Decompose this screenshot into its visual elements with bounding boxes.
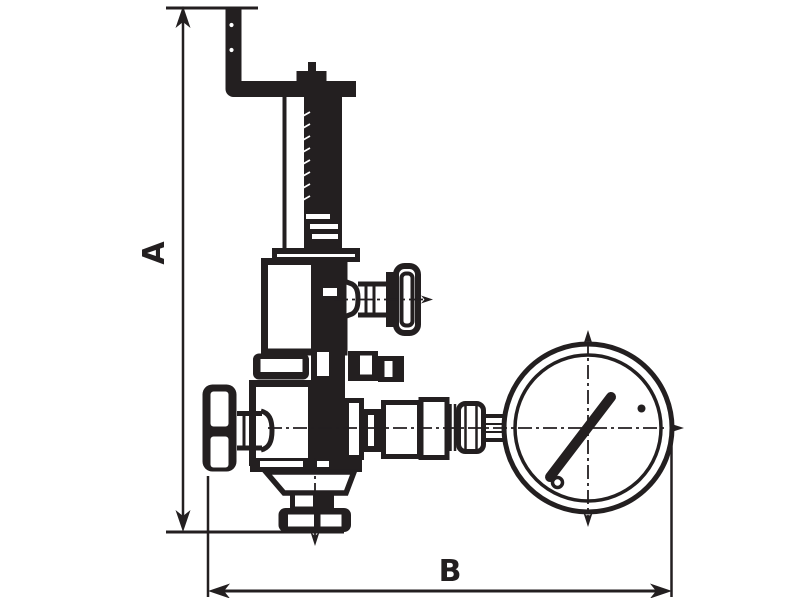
- chamber-notch: [323, 288, 337, 296]
- locknut-slit: [310, 224, 338, 229]
- flange-seam: [260, 461, 303, 467]
- spring-housing: [272, 97, 360, 262]
- lug-slit: [360, 356, 372, 375]
- dim-a-label: A: [137, 241, 172, 265]
- lever-highlight-dot: [229, 23, 233, 27]
- fitting-flange: [347, 401, 362, 458]
- adjusting-lever: [229, 9, 356, 89]
- outlet-flange-window: [321, 515, 342, 527]
- chamber-section-cut: [311, 259, 344, 352]
- knob-window: [211, 437, 229, 468]
- valve-technical-drawing: A B: [0, 0, 800, 598]
- flange-seam: [277, 254, 355, 257]
- spring-chamber: [265, 259, 345, 352]
- locknut-slit: [306, 214, 330, 219]
- flange-window: [261, 359, 303, 372]
- nut-slit: [368, 415, 374, 446]
- needle-hub: [553, 478, 563, 488]
- lever-pipe: [234, 9, 357, 89]
- cap-block: [297, 71, 327, 84]
- locknut-slit: [312, 234, 338, 239]
- spindle-slit: [317, 352, 329, 376]
- dial-screw-dot: [638, 405, 646, 413]
- dim-b-label: B: [439, 554, 462, 589]
- fitting-block: [384, 403, 420, 457]
- drawing-canvas: A B: [0, 0, 800, 598]
- knob-window: [211, 392, 229, 427]
- flange-seam: [317, 461, 329, 467]
- bonnet-cap: [297, 62, 327, 84]
- lever-highlight-dot: [229, 48, 233, 52]
- outlet-taper: [266, 472, 354, 493]
- lug-slit-2: [385, 361, 393, 377]
- side-handwheel: [334, 266, 433, 333]
- outlet-flange-window: [288, 515, 314, 527]
